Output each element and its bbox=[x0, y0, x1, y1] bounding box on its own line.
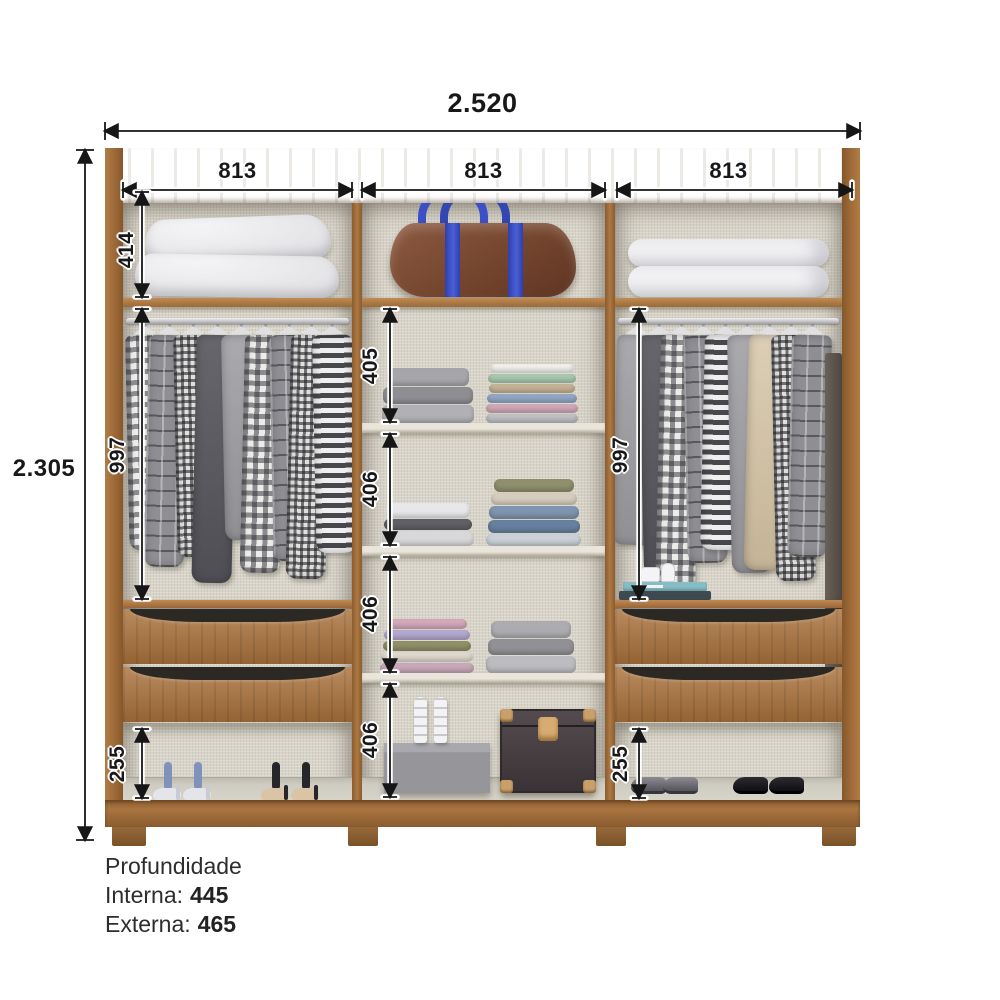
folded-item bbox=[491, 493, 577, 505]
top-shelf bbox=[123, 298, 352, 307]
drawer bbox=[615, 667, 842, 722]
top-shelf bbox=[615, 298, 842, 307]
foot bbox=[112, 827, 146, 846]
folded-item bbox=[384, 519, 472, 530]
depth-external-value: 465 bbox=[198, 911, 236, 937]
drawer-unit bbox=[615, 600, 842, 723]
right-side-panel bbox=[842, 148, 860, 827]
drawer-unit-top bbox=[123, 600, 352, 608]
foot bbox=[348, 827, 378, 846]
folded-item bbox=[382, 405, 474, 423]
folded-item bbox=[488, 374, 576, 383]
sandal bbox=[434, 697, 447, 743]
drawer-handle bbox=[622, 609, 835, 622]
storage-trunk bbox=[500, 709, 596, 793]
drawer-handle bbox=[130, 667, 345, 680]
trunk-corner bbox=[583, 780, 596, 793]
book bbox=[619, 591, 711, 600]
folded-knitwear-stack bbox=[486, 620, 576, 673]
folded-item bbox=[387, 368, 469, 386]
base-panel bbox=[105, 800, 860, 827]
shelf bbox=[362, 673, 605, 683]
folded-item bbox=[486, 534, 581, 546]
folded-item bbox=[383, 641, 471, 651]
folded-clothes-stack bbox=[382, 502, 474, 546]
folded-item bbox=[381, 652, 473, 662]
hanging-rod bbox=[126, 318, 349, 324]
foot bbox=[822, 827, 856, 846]
folded-knitwear-stack bbox=[382, 367, 474, 423]
dim-label-shelf-gap-2: 406 bbox=[360, 449, 382, 529]
folded-item bbox=[494, 479, 574, 492]
dim-label-shelf-gap-1: 405 bbox=[360, 326, 382, 406]
drawer bbox=[123, 667, 352, 722]
dim-label-section-3: 813 bbox=[615, 160, 842, 182]
folded-jeans-stack bbox=[486, 478, 581, 546]
dim-label-hanging-right: 997 bbox=[610, 415, 632, 495]
right-compartment bbox=[615, 203, 842, 800]
trunk-clasp bbox=[538, 717, 558, 741]
folded-shirt-stack bbox=[486, 363, 578, 423]
folded-item bbox=[491, 621, 571, 638]
depth-external-label: Externa: bbox=[105, 911, 191, 937]
depth-title: Profundidade bbox=[105, 852, 242, 881]
shoe-box bbox=[384, 743, 490, 793]
folded-item bbox=[488, 520, 580, 533]
hanging-shirt bbox=[312, 335, 352, 554]
drawer-handle bbox=[622, 667, 835, 680]
shelf bbox=[362, 423, 605, 433]
shelf bbox=[362, 546, 605, 556]
jar bbox=[641, 567, 660, 582]
drawer bbox=[615, 609, 842, 664]
dim-label-top-compartment: 414 bbox=[116, 210, 138, 290]
folded-duvet bbox=[628, 266, 829, 297]
depth-note: Profundidade Interna:445 Externa:465 bbox=[105, 852, 242, 939]
pillow bbox=[135, 253, 340, 299]
folded-item bbox=[380, 663, 474, 673]
sandal bbox=[414, 697, 427, 743]
dim-label-total-width: 2.520 bbox=[105, 92, 860, 114]
left-compartment bbox=[123, 203, 352, 800]
folded-item bbox=[488, 639, 574, 655]
jar bbox=[661, 563, 675, 582]
dim-label-total-height: 2.305 bbox=[8, 458, 80, 480]
depth-internal-line: Interna:445 bbox=[105, 881, 242, 910]
drawer-unit-top bbox=[615, 600, 842, 608]
dim-label-shelf-gap-4: 406 bbox=[360, 700, 382, 780]
dim-label-shoe-right: 255 bbox=[610, 724, 632, 804]
drawer bbox=[123, 609, 352, 664]
folded-item bbox=[489, 384, 575, 393]
dim-total-height bbox=[76, 150, 94, 840]
drawer-unit bbox=[123, 600, 352, 723]
dress-shoe bbox=[733, 777, 768, 794]
dress-shoe bbox=[769, 777, 804, 794]
folded-item bbox=[486, 656, 576, 673]
heeled-shoe bbox=[291, 748, 321, 800]
dim-label-shelf-gap-3: 406 bbox=[360, 574, 382, 654]
dim-label-shoe-left: 255 bbox=[107, 724, 129, 804]
divider-panel bbox=[605, 203, 615, 800]
duffel-strap bbox=[445, 223, 460, 297]
folded-item bbox=[486, 404, 578, 413]
folded-item bbox=[382, 531, 474, 546]
folded-item bbox=[490, 364, 574, 373]
dim-total-width bbox=[105, 122, 860, 140]
dim-label-hanging-left: 997 bbox=[107, 415, 129, 495]
duffel-strap bbox=[508, 223, 523, 297]
folded-item bbox=[386, 503, 470, 518]
dim-label-section-1: 813 bbox=[123, 160, 352, 182]
drawer-handle bbox=[130, 609, 345, 622]
heeled-shoe bbox=[153, 748, 183, 800]
trunk-corner bbox=[500, 709, 513, 722]
middle-compartment bbox=[362, 203, 605, 800]
depth-internal-value: 445 bbox=[190, 882, 228, 908]
wardrobe bbox=[105, 148, 860, 846]
trunk-corner bbox=[500, 780, 513, 793]
depth-external-line: Externa:465 bbox=[105, 910, 242, 939]
folded-item bbox=[487, 394, 577, 403]
dim-label-section-2: 813 bbox=[362, 160, 605, 182]
folded-item bbox=[486, 414, 578, 423]
book bbox=[623, 582, 707, 591]
folded-item bbox=[387, 619, 467, 629]
depth-internal-label: Interna: bbox=[105, 882, 183, 908]
folded-item bbox=[383, 387, 473, 404]
trunk-corner bbox=[583, 709, 596, 722]
wardrobe-dimension-diagram: 2.520 2.305 813 813 813 414 997 997 405 … bbox=[0, 0, 1000, 1000]
duffel-bag bbox=[390, 223, 576, 297]
folded-item bbox=[384, 630, 470, 640]
hanging-rod bbox=[618, 318, 839, 324]
folded-clothes-stack bbox=[380, 618, 474, 673]
top-shelf bbox=[362, 298, 605, 307]
heeled-shoe bbox=[183, 748, 213, 800]
folded-item bbox=[489, 506, 579, 519]
dress-shoe bbox=[663, 777, 698, 794]
heeled-shoe bbox=[261, 748, 291, 800]
folded-duvet bbox=[628, 239, 829, 267]
foot bbox=[596, 827, 626, 846]
dress-shoe bbox=[631, 777, 666, 794]
